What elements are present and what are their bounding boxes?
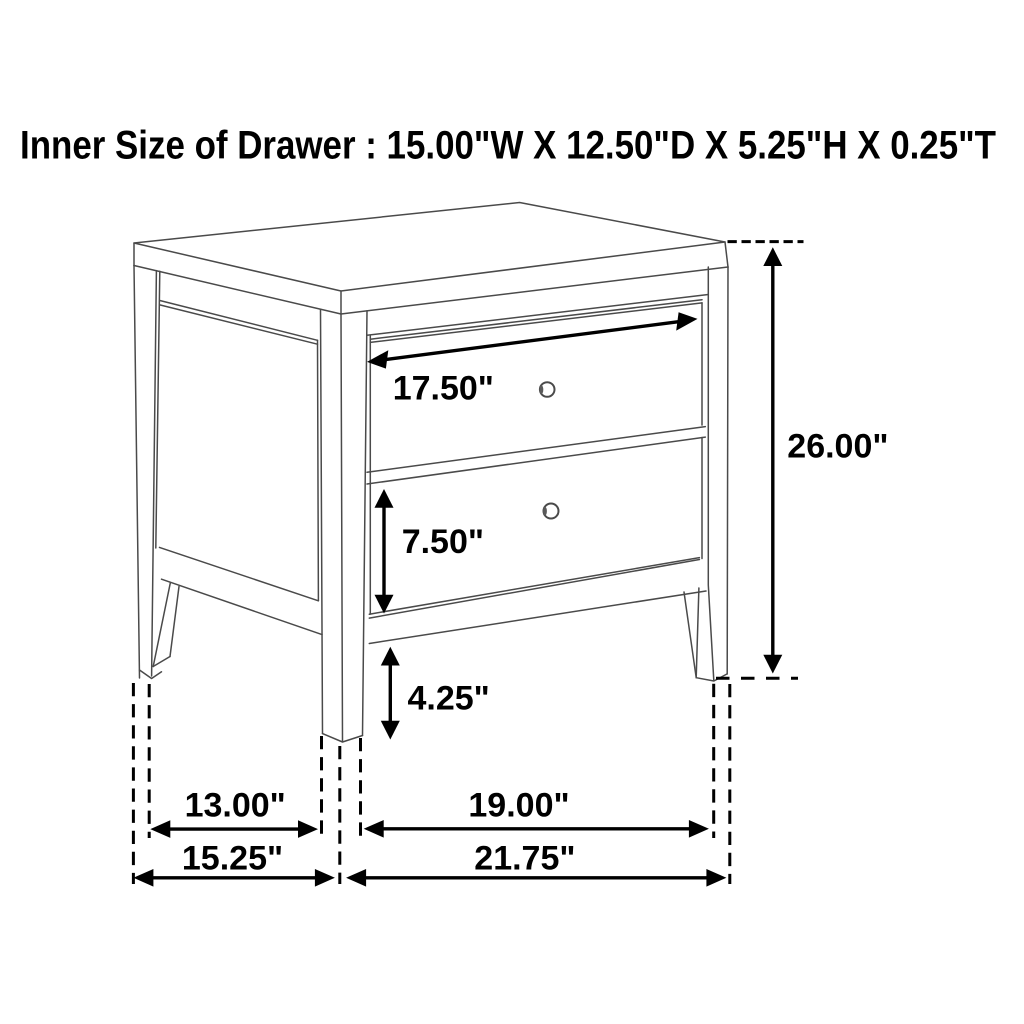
svg-text:19.00": 19.00" — [468, 787, 569, 825]
svg-text:13.00": 13.00" — [185, 787, 286, 825]
svg-text:26.00": 26.00" — [787, 428, 888, 466]
svg-text:Inner Size of Drawer : 15.00"W: Inner Size of Drawer : 15.00"W X 12.50"D… — [20, 124, 996, 168]
svg-text:4.25": 4.25" — [408, 679, 490, 717]
svg-text:7.50": 7.50" — [402, 523, 484, 561]
svg-text:21.75": 21.75" — [474, 840, 575, 878]
svg-text:15.25": 15.25" — [182, 840, 283, 878]
svg-text:17.50": 17.50" — [393, 370, 494, 408]
